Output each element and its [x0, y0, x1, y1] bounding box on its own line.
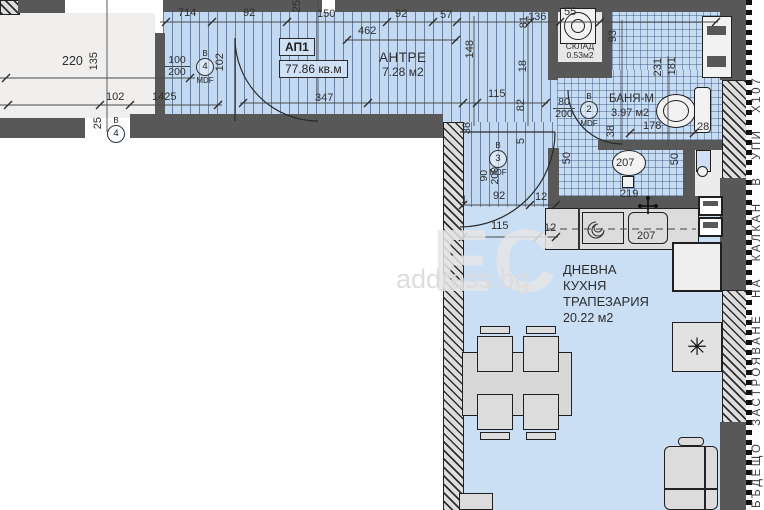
door-tag-v2: В 2 MDF [577, 92, 601, 128]
room-name-living-1: ДНЕВНА [563, 262, 617, 277]
chair-seat [477, 336, 513, 372]
room-area-antre: 7.28 м2 [382, 65, 424, 79]
wall [598, 140, 722, 150]
wall-hatched [443, 122, 464, 510]
door-material: MDF [193, 76, 217, 85]
room-name-living-2: КУХНЯ [563, 278, 606, 293]
dim-25: 25 [291, 0, 303, 12]
room-area-storage: 0.53м2 [553, 50, 607, 60]
dim-136: 136 [528, 11, 546, 23]
dim-102: 102 [106, 91, 124, 103]
door-number: 4 [196, 58, 214, 76]
pipe-icon [697, 166, 708, 177]
room-name-antre: АНТРЕ [379, 50, 427, 65]
door-tag-v4b: В 4 [104, 116, 128, 143]
dim-57: 57 [440, 9, 452, 21]
door-letter: В [193, 49, 217, 58]
dim-50: 50 [669, 153, 681, 165]
dim-462: 462 [358, 25, 376, 37]
wall [18, 0, 65, 13]
chair-back [480, 432, 510, 440]
dim-92: 92 [243, 7, 255, 19]
dim-347: 347 [315, 92, 333, 104]
wall [0, 118, 85, 138]
floor-plan: ✳ 714 92 150 462 92 57 136 55 220 135 10… [0, 0, 764, 510]
dim-148: 148 [464, 40, 476, 58]
dim-135: 135 [88, 52, 100, 70]
counter-divider [578, 208, 580, 250]
dim-81: 81 [518, 16, 530, 28]
door-letter: В [486, 141, 510, 150]
dim-714: 714 [178, 7, 196, 19]
chair-back [526, 432, 556, 440]
dim-181: 181 [666, 57, 678, 75]
chair-back [526, 326, 556, 334]
chair-seat [523, 394, 559, 430]
dim-220: 220 [62, 55, 83, 67]
kitchen-sink [582, 212, 624, 244]
watermark-logo: ЕС [432, 210, 558, 312]
wall [683, 150, 695, 198]
apartment-area: 77.86 кв.м [279, 60, 348, 78]
wall-right [720, 422, 746, 510]
dim-207: 207 [637, 230, 655, 242]
dim-1425: 1425 [152, 91, 176, 103]
door-number: 3 [489, 150, 507, 168]
door-number: 2 [580, 101, 598, 119]
chair-seat [477, 394, 513, 430]
oven-detail [703, 201, 718, 206]
armchair-headrest [678, 437, 704, 446]
oven-unit [698, 196, 723, 216]
wall-right-hatched [722, 290, 748, 424]
door-size-v2: 80 200 [553, 97, 575, 120]
room-name-bath: БАНЯ-М [609, 93, 654, 105]
dim-38: 38 [605, 125, 617, 137]
watermark-site: address.bg [396, 264, 530, 295]
wall-hatched [0, 0, 20, 15]
dim-55: 55 [564, 6, 576, 18]
dim-219: 219 [620, 188, 638, 200]
dim-207: 207 [616, 157, 634, 169]
microwave-detail [703, 222, 718, 228]
chair-back [480, 326, 510, 334]
stove [672, 242, 722, 292]
apartment-id: АП1 [279, 38, 315, 56]
bath-cabinet-shelf [707, 26, 726, 35]
room-area-bath: 3.97 м2 [611, 107, 649, 119]
door-tag-v4: В 4 MDF [193, 49, 217, 85]
door-number: 4 [107, 125, 125, 143]
dim-82: 82 [515, 99, 527, 111]
bath-cabinet-shelf [707, 56, 726, 67]
dim-115: 115 [488, 88, 506, 100]
dim-178: 178 [643, 120, 661, 132]
door-letter: В [104, 116, 128, 125]
dim-150: 150 [317, 8, 335, 20]
furniture-box [459, 493, 493, 510]
margin-note: БЪДЕЩО ЗАСТРОЯВАНЕ НА КАЛКАН В УПИ Х107 [751, 8, 763, 508]
dim-50: 50 [561, 152, 573, 164]
dim-12: 12 [535, 191, 547, 203]
room-area-living: 20.22 м2 [563, 311, 613, 325]
door-letter: В [577, 92, 601, 101]
dim-93: 93 [607, 30, 619, 42]
wall [130, 114, 443, 138]
armchair-seam [664, 488, 718, 490]
bath-sink-pedestal [622, 176, 634, 188]
fridge: ✳ [672, 322, 722, 372]
dim-38: 38 [461, 122, 473, 134]
dim-231: 231 [652, 58, 664, 76]
door-size-v3: 90 200 [479, 167, 501, 185]
room-name-living-3: ТРАПЕЗАРИЯ [563, 294, 649, 309]
door-size-v4: 100 200 [164, 55, 190, 78]
dim-28: 28 [697, 121, 709, 133]
dim-25: 25 [92, 117, 104, 129]
fridge-snowflake-icon: ✳ [687, 334, 707, 361]
dim-5: 5 [515, 138, 527, 144]
dim-18: 18 [517, 60, 529, 72]
toilet-seat [663, 100, 689, 122]
armchair [664, 446, 718, 510]
dim-1: 1 [461, 194, 467, 206]
armchair-armrest-line [704, 446, 706, 510]
wall-right-hatched [722, 80, 748, 180]
dim-92: 92 [395, 8, 407, 20]
boiler-inner-icon [571, 19, 585, 33]
dim-92: 92 [493, 190, 505, 202]
door-material: MDF [577, 119, 601, 128]
wall-right [720, 178, 746, 290]
chair-seat [523, 336, 559, 372]
